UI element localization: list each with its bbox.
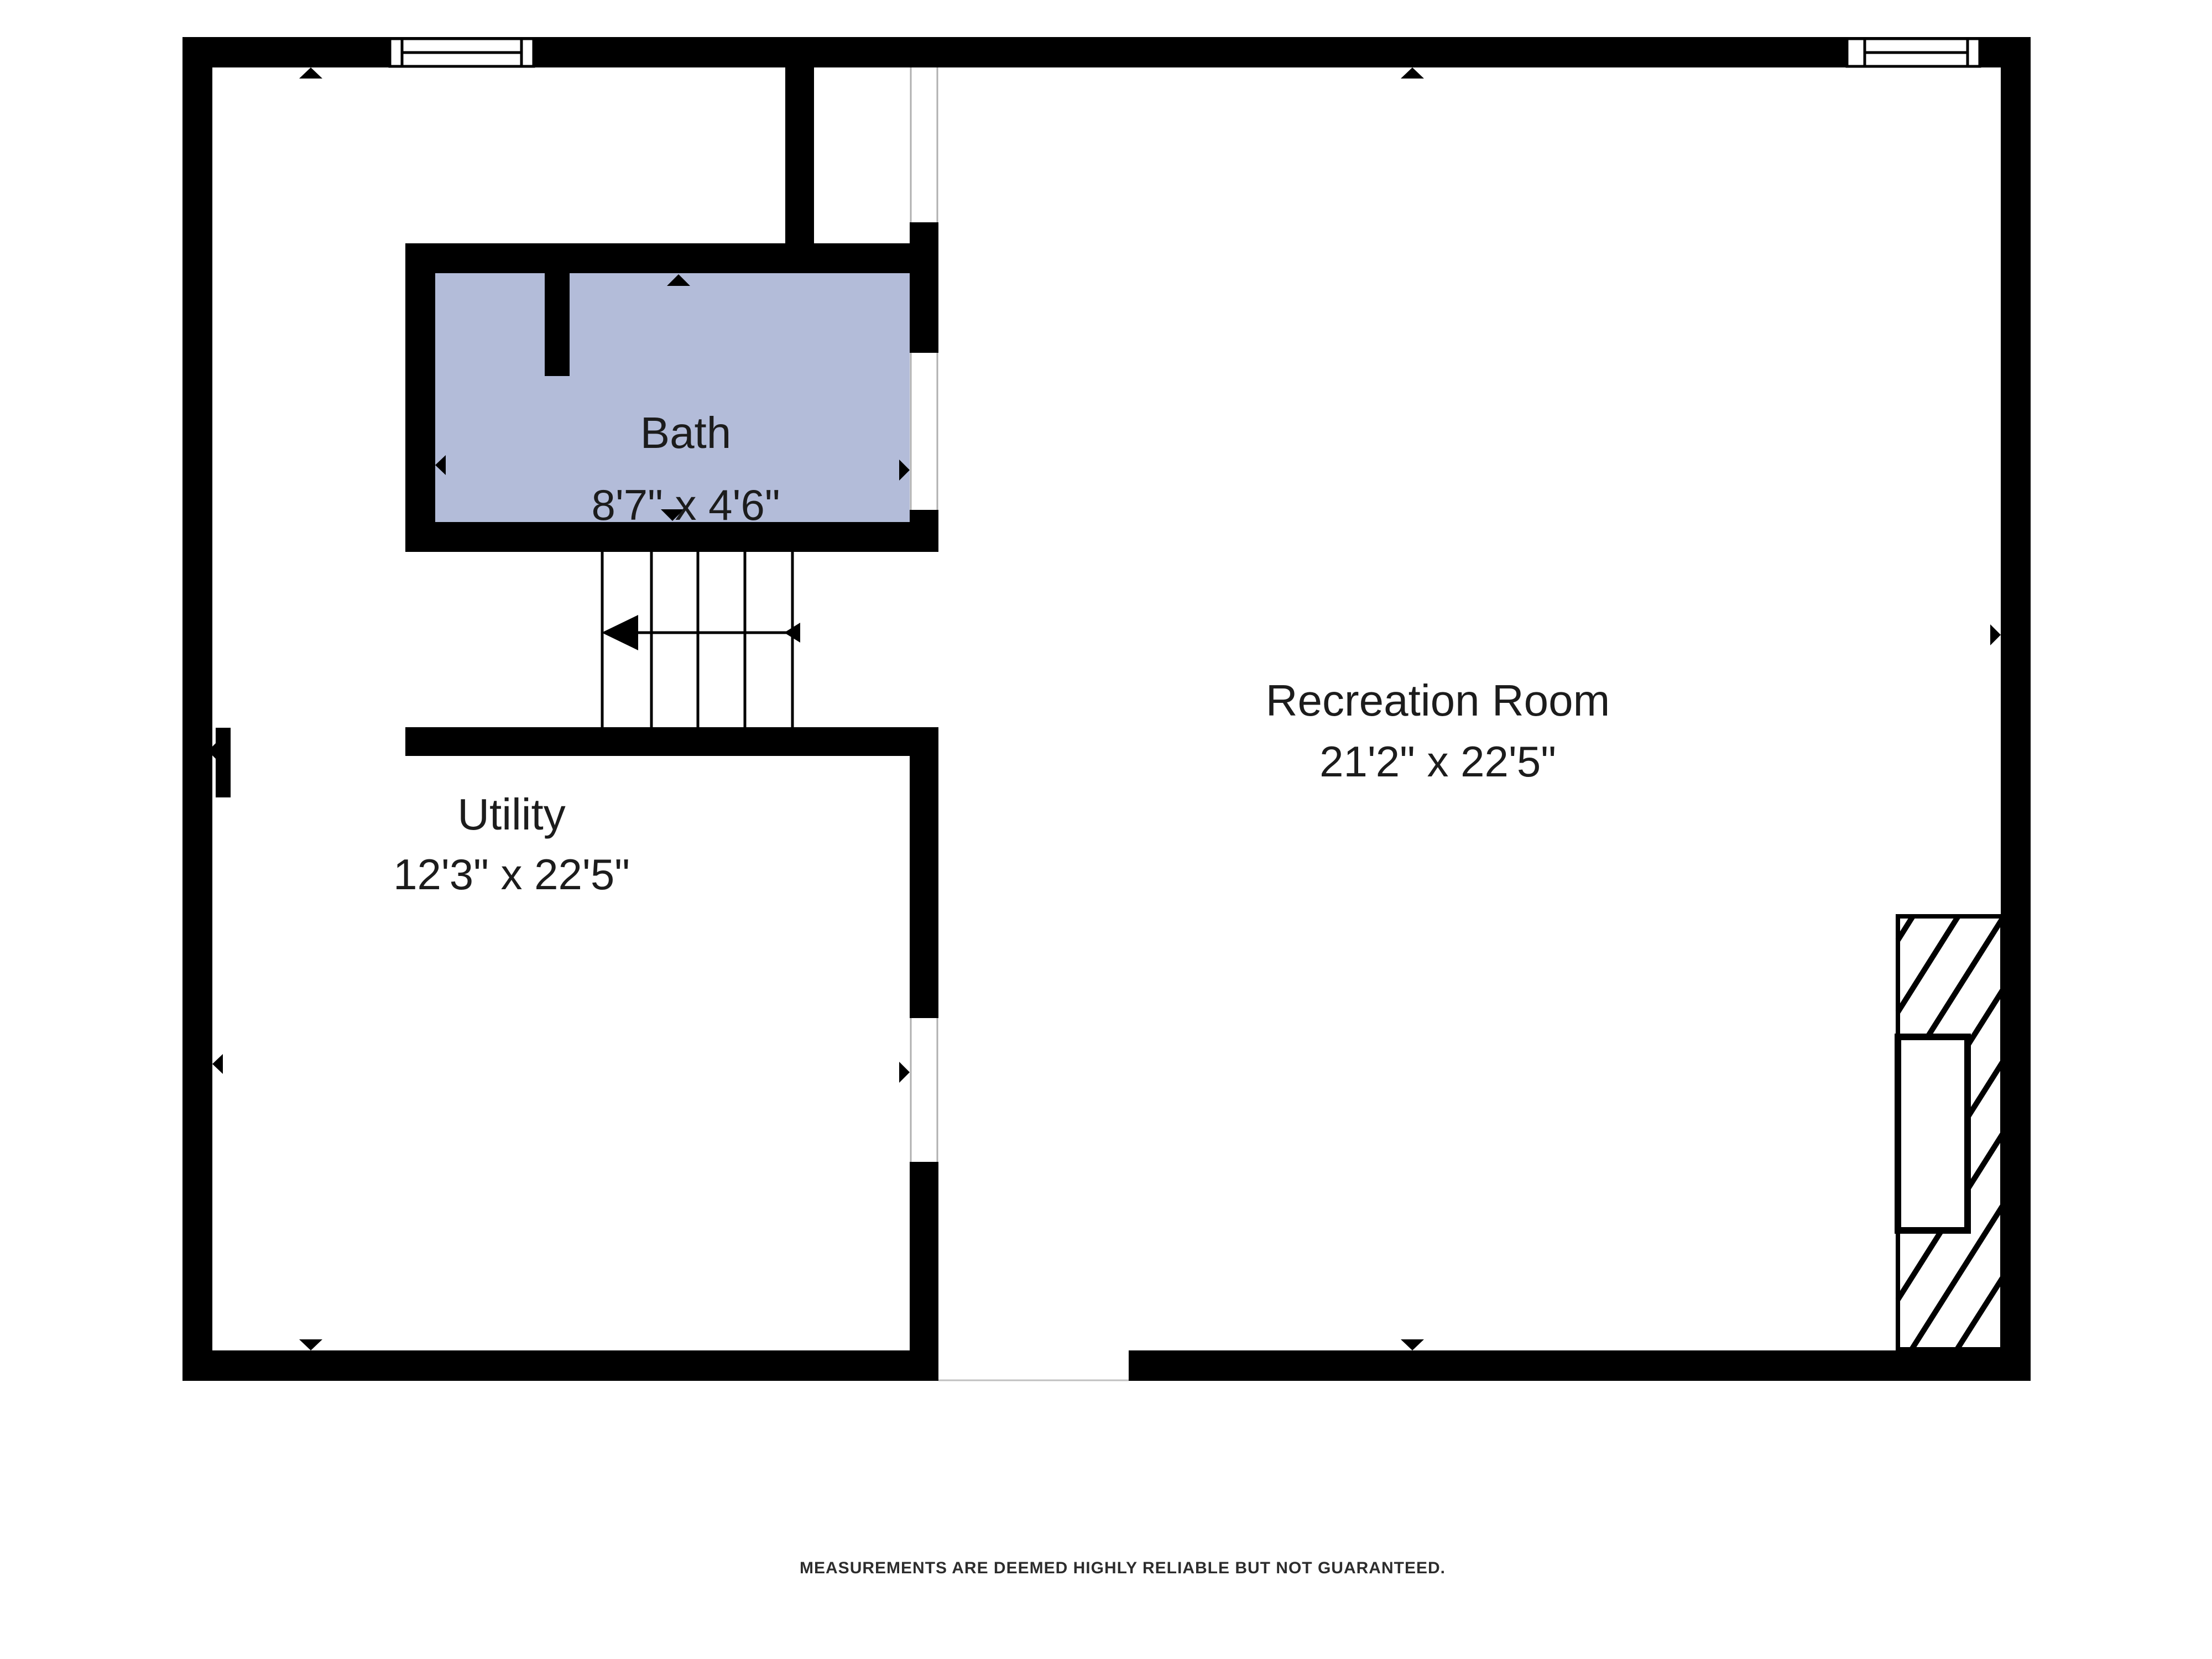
utility-right-wall-upper xyxy=(910,727,938,1018)
bath-top-wall xyxy=(405,243,938,273)
fireplace-symbol xyxy=(1898,916,2002,1349)
utility-dimensions: 12'3" x 22'5" xyxy=(393,850,630,899)
window-symbol-left xyxy=(390,39,534,66)
left-wall xyxy=(182,37,212,1381)
closet-stub-wall xyxy=(785,67,814,243)
floor-plan-page: Bath 8'7" x 4'6" Recreation Room 21'2" x… xyxy=(0,0,2212,1659)
disclaimer-text: MEASUREMENTS ARE DEEMED HIGHLY RELIABLE … xyxy=(800,1559,1446,1577)
background xyxy=(0,0,2212,1659)
utility-right-wall-lower xyxy=(910,1162,938,1381)
utility-label: Utility xyxy=(457,790,566,839)
bath-label: Bath xyxy=(640,408,732,457)
recreation-room-dimensions: 21'2" x 22'5" xyxy=(1319,737,1556,786)
bath-right-wall-lower xyxy=(910,510,938,552)
bath-right-wall-upper xyxy=(910,222,938,353)
recreation-room-label: Recreation Room xyxy=(1266,676,1610,725)
bath-dimensions: 8'7" x 4'6" xyxy=(591,481,780,529)
bath-left-wall xyxy=(405,243,435,552)
utility-top-wall xyxy=(405,727,938,756)
floor-plan: Bath 8'7" x 4'6" Recreation Room 21'2" x… xyxy=(0,0,2212,1659)
bottom-wall-right xyxy=(1129,1350,2031,1381)
window-symbol-right xyxy=(1847,39,1980,66)
bath-partition-wall xyxy=(545,273,570,376)
bottom-wall-left xyxy=(182,1350,938,1381)
utility-wall-pilaster xyxy=(216,728,231,797)
right-wall xyxy=(2001,37,2031,1381)
fireplace-firebox xyxy=(1898,1037,1968,1230)
